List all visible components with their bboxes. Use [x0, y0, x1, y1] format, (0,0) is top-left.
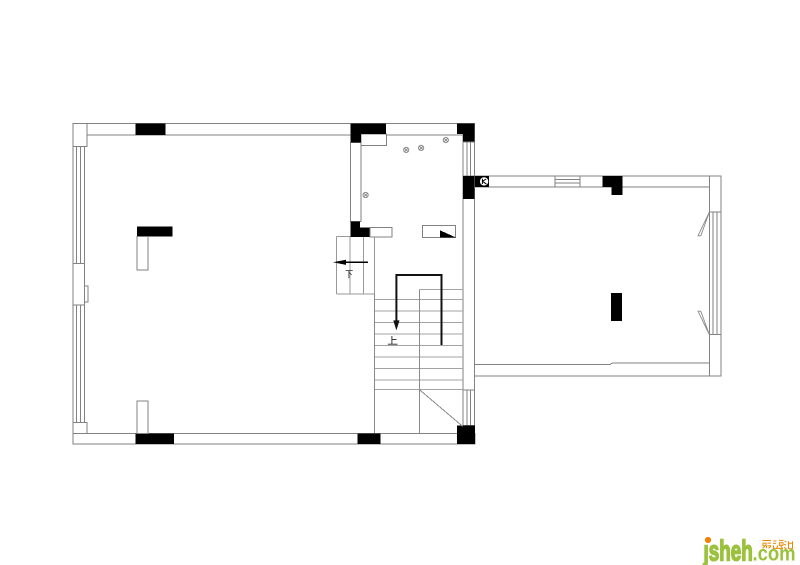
- svg-text:.com: .com: [753, 542, 796, 565]
